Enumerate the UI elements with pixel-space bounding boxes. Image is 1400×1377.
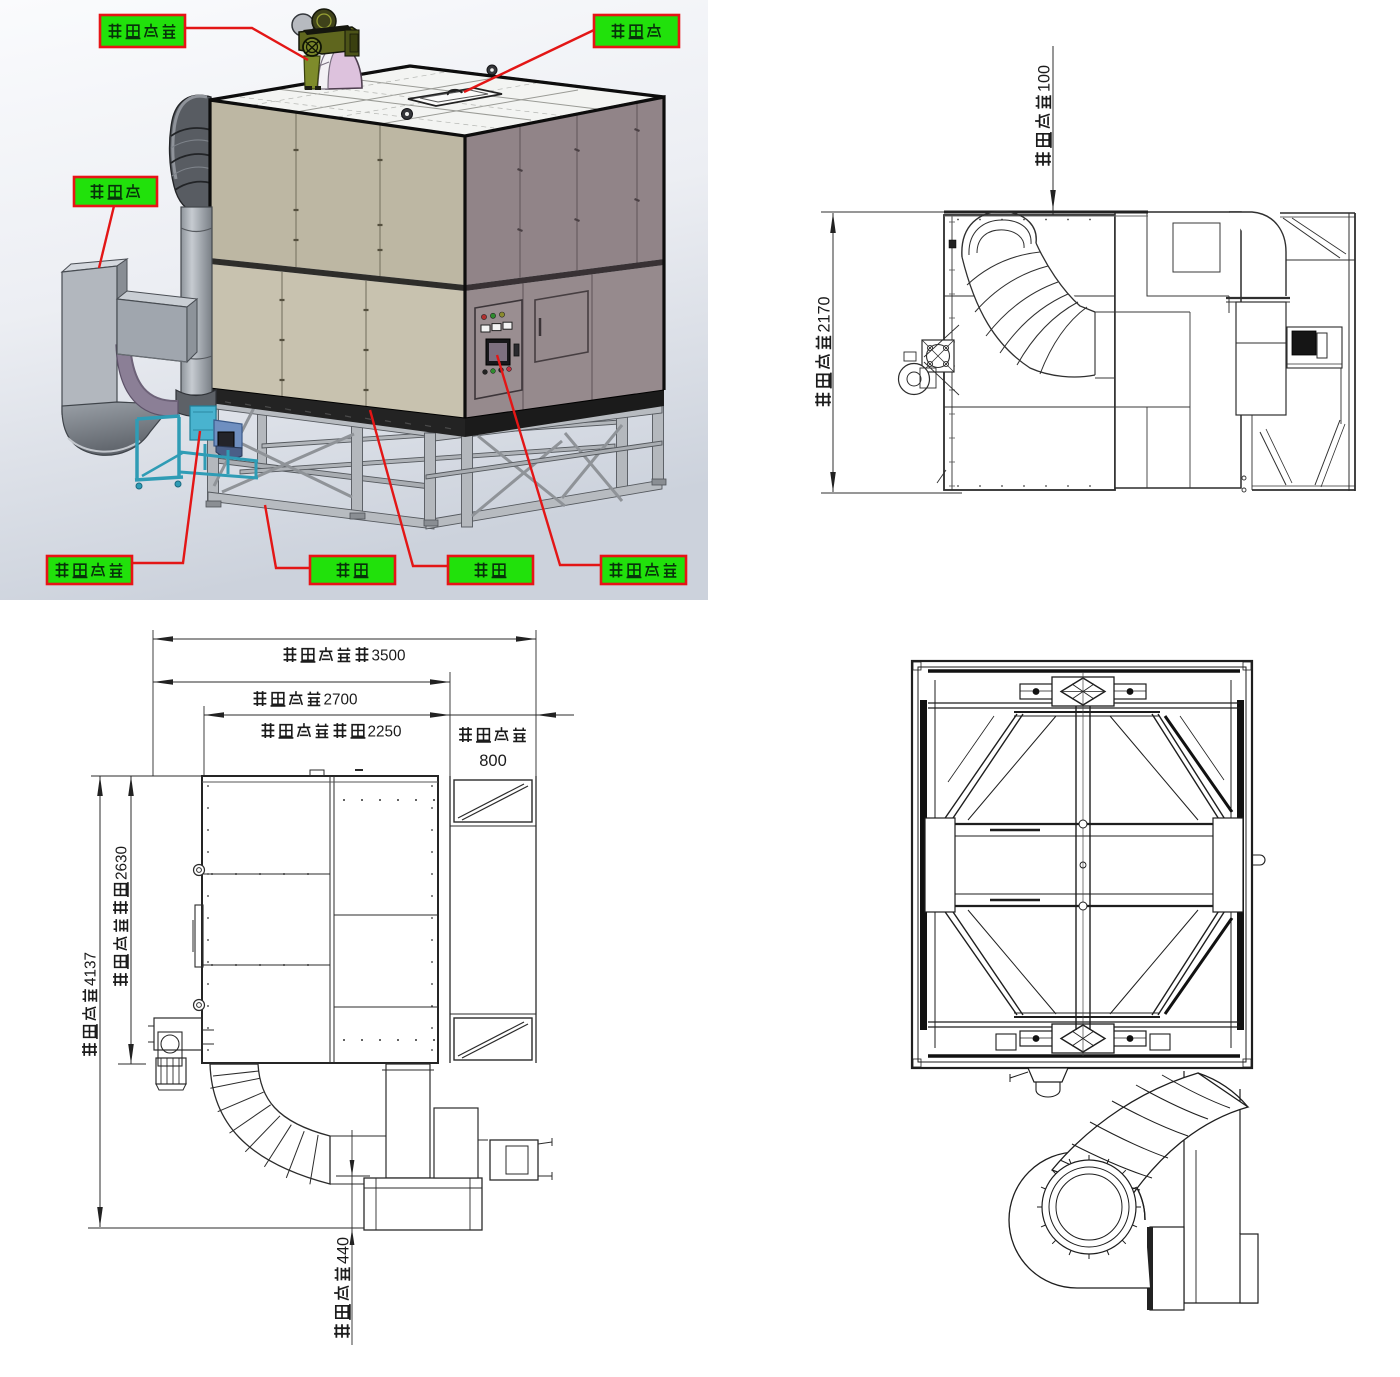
svg-text:100: 100 xyxy=(1036,65,1054,92)
svg-text:440: 440 xyxy=(335,1237,353,1264)
svg-text:3500: 3500 xyxy=(371,648,405,665)
svg-text:4137: 4137 xyxy=(83,952,100,986)
svg-text:2700: 2700 xyxy=(323,692,357,709)
svg-text:2170: 2170 xyxy=(816,297,834,333)
svg-text:800: 800 xyxy=(479,752,507,770)
svg-text:2630: 2630 xyxy=(114,846,131,880)
svg-text:2250: 2250 xyxy=(367,724,401,741)
